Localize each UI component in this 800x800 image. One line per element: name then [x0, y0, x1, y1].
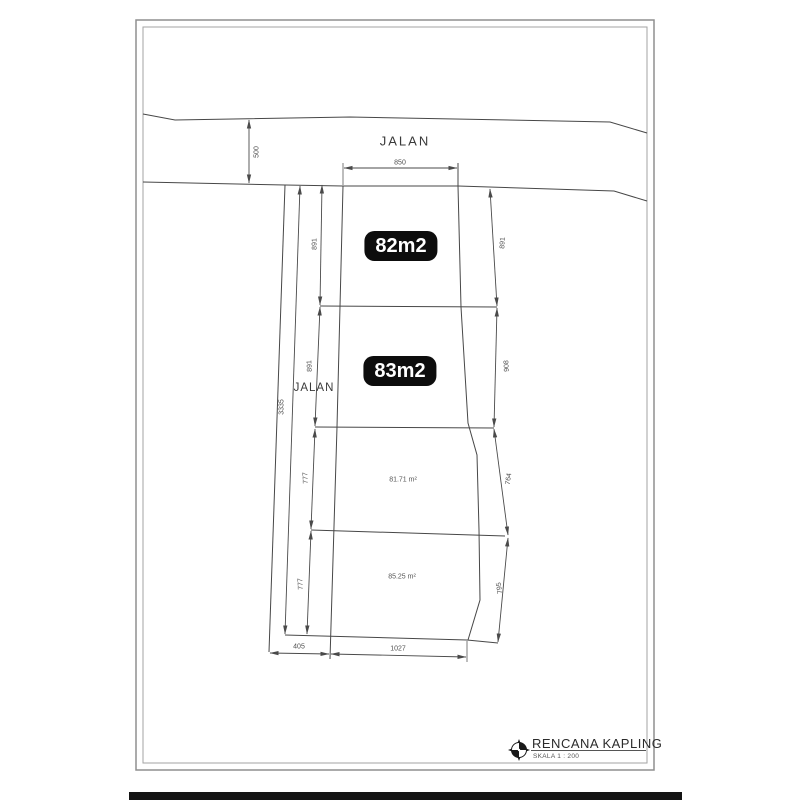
- plot-3-area-label: 81.71 m²: [389, 477, 417, 484]
- dim-left-4: 777: [297, 578, 304, 590]
- plot-2-area-badge: 83m2: [363, 356, 436, 386]
- title-block-title: RENCANA KAPLING: [532, 736, 662, 751]
- compass-logo-icon: [508, 739, 530, 761]
- title-block-scale: SKALA 1 : 200: [533, 753, 579, 760]
- dim-right-2: 908: [503, 360, 510, 372]
- bottom-bar: [129, 792, 682, 800]
- drawing-frame: [136, 20, 654, 770]
- site-plan-drawing: [0, 0, 800, 800]
- plot-4-area-label: 85.25 m²: [388, 574, 416, 581]
- dim-top-width: 850: [394, 160, 406, 167]
- dimension-lines: [249, 120, 508, 657]
- dim-left-3: 777: [302, 472, 309, 484]
- plot-1-area-badge: 82m2: [364, 231, 437, 261]
- dim-right-1: 891: [499, 237, 507, 249]
- left-road-label: JALAN: [294, 382, 335, 394]
- dim-road-depth: 500: [254, 146, 261, 158]
- dim-left-2: 891: [306, 360, 313, 372]
- dim-overall-height: 3335: [279, 399, 286, 415]
- top-road-label: JALAN: [380, 134, 430, 149]
- dim-bottom-left: 405: [293, 644, 305, 651]
- dim-left-1: 891: [311, 238, 318, 250]
- site-plan-page: JALAN JALAN 82m2 83m2 81.71 m² 85.25 m² …: [0, 0, 800, 800]
- dim-bottom-width: 1027: [390, 646, 406, 653]
